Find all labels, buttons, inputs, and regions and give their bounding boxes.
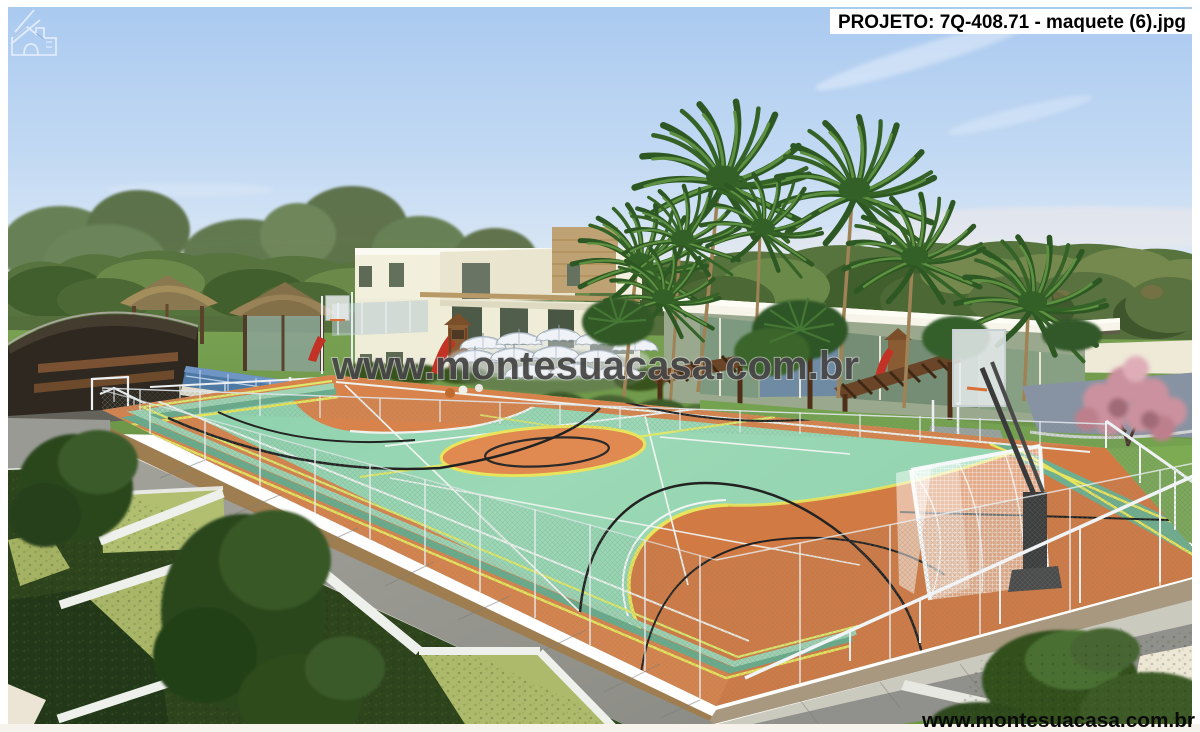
svg-text:www.montesuacasa.com.br: www.montesuacasa.com.br [331, 344, 859, 388]
svg-text:www.montesuacasa.com.br: www.montesuacasa.com.br [921, 710, 1195, 732]
svg-text:PROJETO: 7Q-408.71 - maquete (: PROJETO: 7Q-408.71 - maquete (6).jpg [838, 12, 1186, 33]
